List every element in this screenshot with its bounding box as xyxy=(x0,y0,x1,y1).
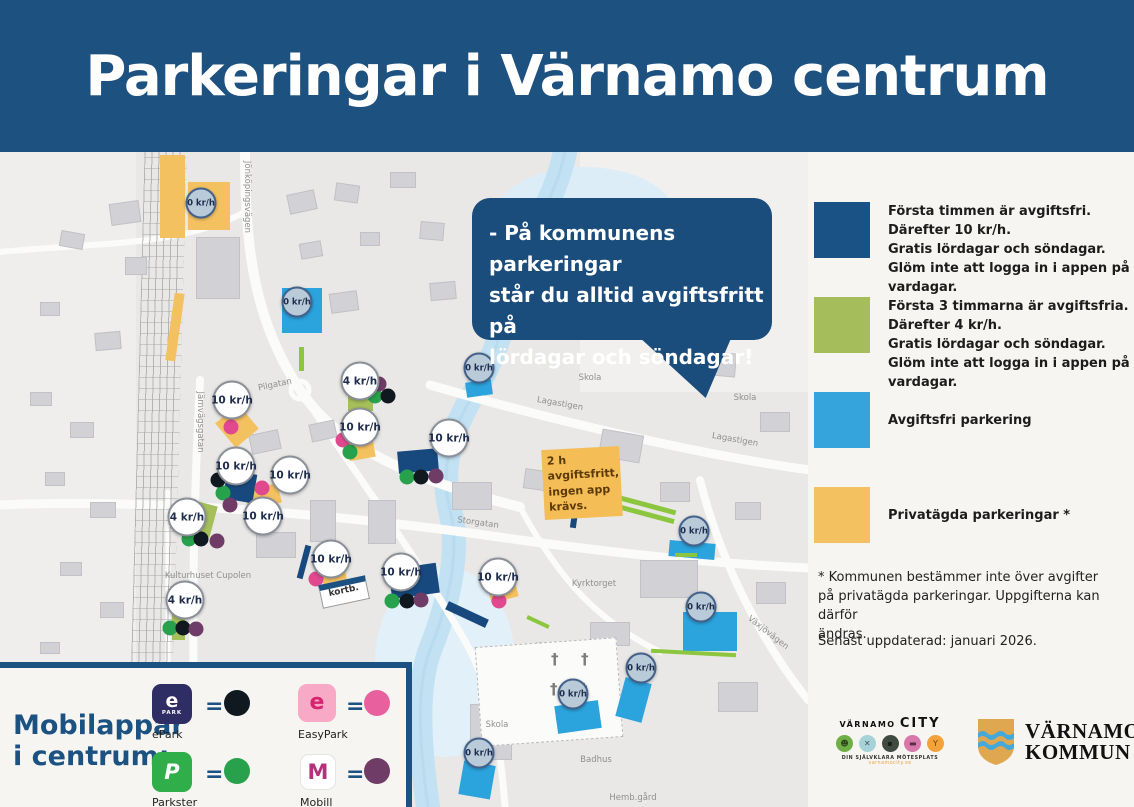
building xyxy=(756,582,786,604)
street-label: Hemb.gård xyxy=(609,793,656,803)
building xyxy=(109,200,142,226)
app-icon-letter: M xyxy=(308,760,329,784)
mobill-map-dot-sample xyxy=(364,758,390,784)
green-app-dot xyxy=(385,594,400,609)
building xyxy=(368,500,396,544)
varnamo-city-url: varnamocity.se xyxy=(834,761,946,766)
legend-item-avgiftsfri: Avgiftsfri parkering xyxy=(814,392,1132,448)
price-marker: 0 kr/h xyxy=(558,679,589,710)
legend-swatch-privatagd xyxy=(814,487,870,543)
building xyxy=(256,532,296,558)
price-marker: 10 kr/h xyxy=(213,381,252,420)
building xyxy=(390,172,416,188)
building xyxy=(70,422,94,438)
poster-title: Parkeringar i Värnamo centrum xyxy=(85,44,1048,109)
building xyxy=(760,412,790,432)
church-cross: † xyxy=(551,650,559,668)
easypark-app-label: EasyPark xyxy=(298,728,348,741)
street-label: Skola xyxy=(579,373,602,383)
building xyxy=(60,562,82,576)
building xyxy=(419,221,444,241)
legend-item-privatagd: Privatägda parkeringar * xyxy=(814,487,1132,543)
legend-swatch-kommunal-10kr xyxy=(814,202,870,258)
price-marker: 0 kr/h xyxy=(679,516,710,547)
varnamo-kommun-logo: VÄRNAMO KOMMUN xyxy=(976,718,1134,766)
free-2h-note: 2 h avgiftsfritt,ingen app krävs. xyxy=(541,446,623,520)
speech-bubble-line: lördagar och söndagar! xyxy=(489,342,772,373)
building xyxy=(718,682,758,712)
purple-app-dot xyxy=(189,622,204,637)
street-label: Badhus xyxy=(580,755,612,765)
building xyxy=(329,290,360,314)
price-marker: 4 kr/h xyxy=(168,498,207,537)
pink-app-dot xyxy=(255,481,270,496)
price-marker: 10 kr/h xyxy=(217,447,256,486)
building xyxy=(30,392,52,406)
parkster-app-label: Parkster xyxy=(152,796,197,807)
epark-map-dot-sample xyxy=(224,690,250,716)
black-app-dot xyxy=(414,470,429,485)
poster-header: Parkeringar i Värnamo centrum xyxy=(0,0,1134,152)
app-icon-letter: e xyxy=(310,693,325,713)
price-marker: 10 kr/h xyxy=(341,408,380,447)
building xyxy=(45,472,65,486)
speech-bubble-line: - På kommunens parkeringar xyxy=(489,218,772,280)
building xyxy=(94,331,121,351)
footnote-line: * Kommunen bestämmer inte över avgifter xyxy=(818,568,1134,587)
purple-app-dot xyxy=(414,593,429,608)
legend-footnote: * Kommunen bestämmer inte över avgifterp… xyxy=(818,568,1134,644)
app-icon-letter: P xyxy=(164,760,179,784)
black-app-dot xyxy=(400,594,415,609)
legend-line: Privatägda parkeringar * xyxy=(888,506,1070,525)
legend-line: Glöm inte att logga in i appen på vardag… xyxy=(888,259,1132,297)
mobill-app-label: Mobill xyxy=(300,796,332,807)
greenline-parking-area xyxy=(675,553,697,557)
dining-icon: ✕ xyxy=(859,735,876,752)
speech-bubble-line: står du alltid avgiftsfritt på xyxy=(489,280,772,342)
building xyxy=(360,232,380,246)
purple-app-dot xyxy=(223,498,238,513)
pink-app-dot xyxy=(224,420,239,435)
building xyxy=(310,500,336,542)
parking-poster: Parkeringar i Värnamo centrum xyxy=(0,0,1134,807)
building xyxy=(40,642,60,654)
building xyxy=(334,182,360,203)
screen-icon: ▬ xyxy=(904,735,921,752)
price-marker: 10 kr/h xyxy=(312,540,351,579)
kommun-logo-text: VÄRNAMO KOMMUN xyxy=(1025,721,1134,763)
price-marker: 10 kr/h xyxy=(271,456,310,495)
legend-line: Första timmen är avgiftsfri. xyxy=(888,202,1132,221)
street-label: Järnvägsgatan xyxy=(195,391,205,452)
legend-line: Glöm inte att logga in i appen på vardag… xyxy=(888,354,1132,392)
equals-sign: = xyxy=(205,762,223,787)
street-label: Kulturhuset Cupolen xyxy=(165,571,251,581)
building xyxy=(452,482,492,510)
black-app-dot xyxy=(381,389,396,404)
legend-line: Därefter 10 kr/h. xyxy=(888,221,1132,240)
street-label: Jönköpingsvägen xyxy=(242,161,252,233)
legend-sidebar: Första timmen är avgiftsfri.Därefter 10 … xyxy=(808,152,1134,807)
easypark-map-dot-sample xyxy=(364,690,390,716)
mobill-app-icon: M xyxy=(300,754,336,790)
legend-line: Gratis lördagar och söndagar. xyxy=(888,240,1132,259)
churchyard xyxy=(475,637,624,747)
price-marker: 0 kr/h xyxy=(686,592,717,623)
parkster-map-dot-sample xyxy=(224,758,250,784)
purple-app-dot xyxy=(429,469,444,484)
building xyxy=(196,237,240,299)
street-label: Skola xyxy=(486,720,509,730)
note-line: ingen app krävs. xyxy=(548,481,618,515)
people-icon: ☻ xyxy=(836,735,853,752)
last-updated-text: Senast uppdaterad: januari 2026. xyxy=(818,634,1037,649)
easypark-app-icon: e xyxy=(298,684,336,722)
building xyxy=(429,281,456,301)
legend-line: Avgiftsfri parkering xyxy=(888,411,1032,430)
parkster-app-icon: P xyxy=(152,752,192,792)
price-marker: 4 kr/h xyxy=(341,362,380,401)
building xyxy=(640,560,698,598)
legend-text: Första timmen är avgiftsfri.Därefter 10 … xyxy=(888,202,1132,297)
mobile-apps-panel: Mobilappari centrum: ePARK=eParke=EasyPa… xyxy=(0,662,412,807)
legend-item-kommunal-10kr: Första timmen är avgiftsfri.Därefter 10 … xyxy=(814,202,1132,297)
legend-item-kommunal-4kr: Första 3 timmarna är avgiftsfria.Därefte… xyxy=(814,297,1132,392)
price-marker: 0 kr/h xyxy=(626,653,657,684)
purple-app-dot xyxy=(210,534,225,549)
drink-icon: Y xyxy=(927,735,944,752)
kommun-shield-icon xyxy=(976,718,1016,766)
legend-line: Gratis lördagar och söndagar. xyxy=(888,335,1132,354)
price-marker: 10 kr/h xyxy=(479,558,518,597)
legend-line: Första 3 timmarna är avgiftsfria. xyxy=(888,297,1132,316)
green-app-dot xyxy=(400,470,415,485)
footnote-line: på privatägda parkeringar. Uppgifterna k… xyxy=(818,587,1134,625)
legend-swatch-kommunal-4kr xyxy=(814,297,870,353)
legend-swatch-avgiftsfri xyxy=(814,392,870,448)
equals-sign: = xyxy=(346,694,364,719)
church-cross: † xyxy=(550,680,558,698)
building xyxy=(40,302,60,316)
legend-text: Första 3 timmarna är avgiftsfria.Därefte… xyxy=(888,297,1132,392)
building xyxy=(100,602,124,618)
app-icon-letter: e xyxy=(166,693,179,710)
building xyxy=(735,502,761,520)
greenline-parking-area xyxy=(299,347,304,371)
price-marker: 0 kr/h xyxy=(464,738,495,769)
speech-bubble: - På kommunens parkeringarstår du alltid… xyxy=(472,198,772,340)
equals-sign: = xyxy=(205,694,223,719)
building xyxy=(125,257,147,275)
street-label: Kyrktorget xyxy=(572,579,616,589)
green-app-dot xyxy=(343,445,358,460)
varnamo-city-logo-text: VÄRNAMO CITY xyxy=(834,716,946,731)
price-marker: 10 kr/h xyxy=(244,497,283,536)
price-marker: 4 kr/h xyxy=(166,581,205,620)
varnamo-city-logo-icons: ☻✕▪▬Y xyxy=(836,735,944,752)
varnamo-city-logo: VÄRNAMO CITY ☻✕▪▬Y DIN SJÄLVKLARA MÖTESP… xyxy=(834,716,946,766)
legend-text: Privatägda parkeringar * xyxy=(888,506,1070,525)
building xyxy=(660,482,690,502)
price-marker: 10 kr/h xyxy=(430,419,469,458)
church-cross: † xyxy=(581,650,589,668)
legend-line: Därefter 4 kr/h. xyxy=(888,316,1132,335)
equals-sign: = xyxy=(346,762,364,787)
note-line: 2 h avgiftsfritt, xyxy=(546,450,616,484)
price-marker: 0 kr/h xyxy=(186,188,217,219)
epark-app-label: ePark xyxy=(152,728,183,741)
orange-parking-area xyxy=(160,155,185,238)
app-icon-subtext: PARK xyxy=(162,710,182,716)
epark-app-icon: ePARK xyxy=(152,684,192,724)
legend-text: Avgiftsfri parkering xyxy=(888,411,1032,430)
camera-icon: ▪ xyxy=(882,735,899,752)
street-label: Skola xyxy=(734,393,757,403)
building xyxy=(90,502,116,518)
price-marker: 10 kr/h xyxy=(382,553,421,592)
price-marker: 0 kr/h xyxy=(282,287,313,318)
